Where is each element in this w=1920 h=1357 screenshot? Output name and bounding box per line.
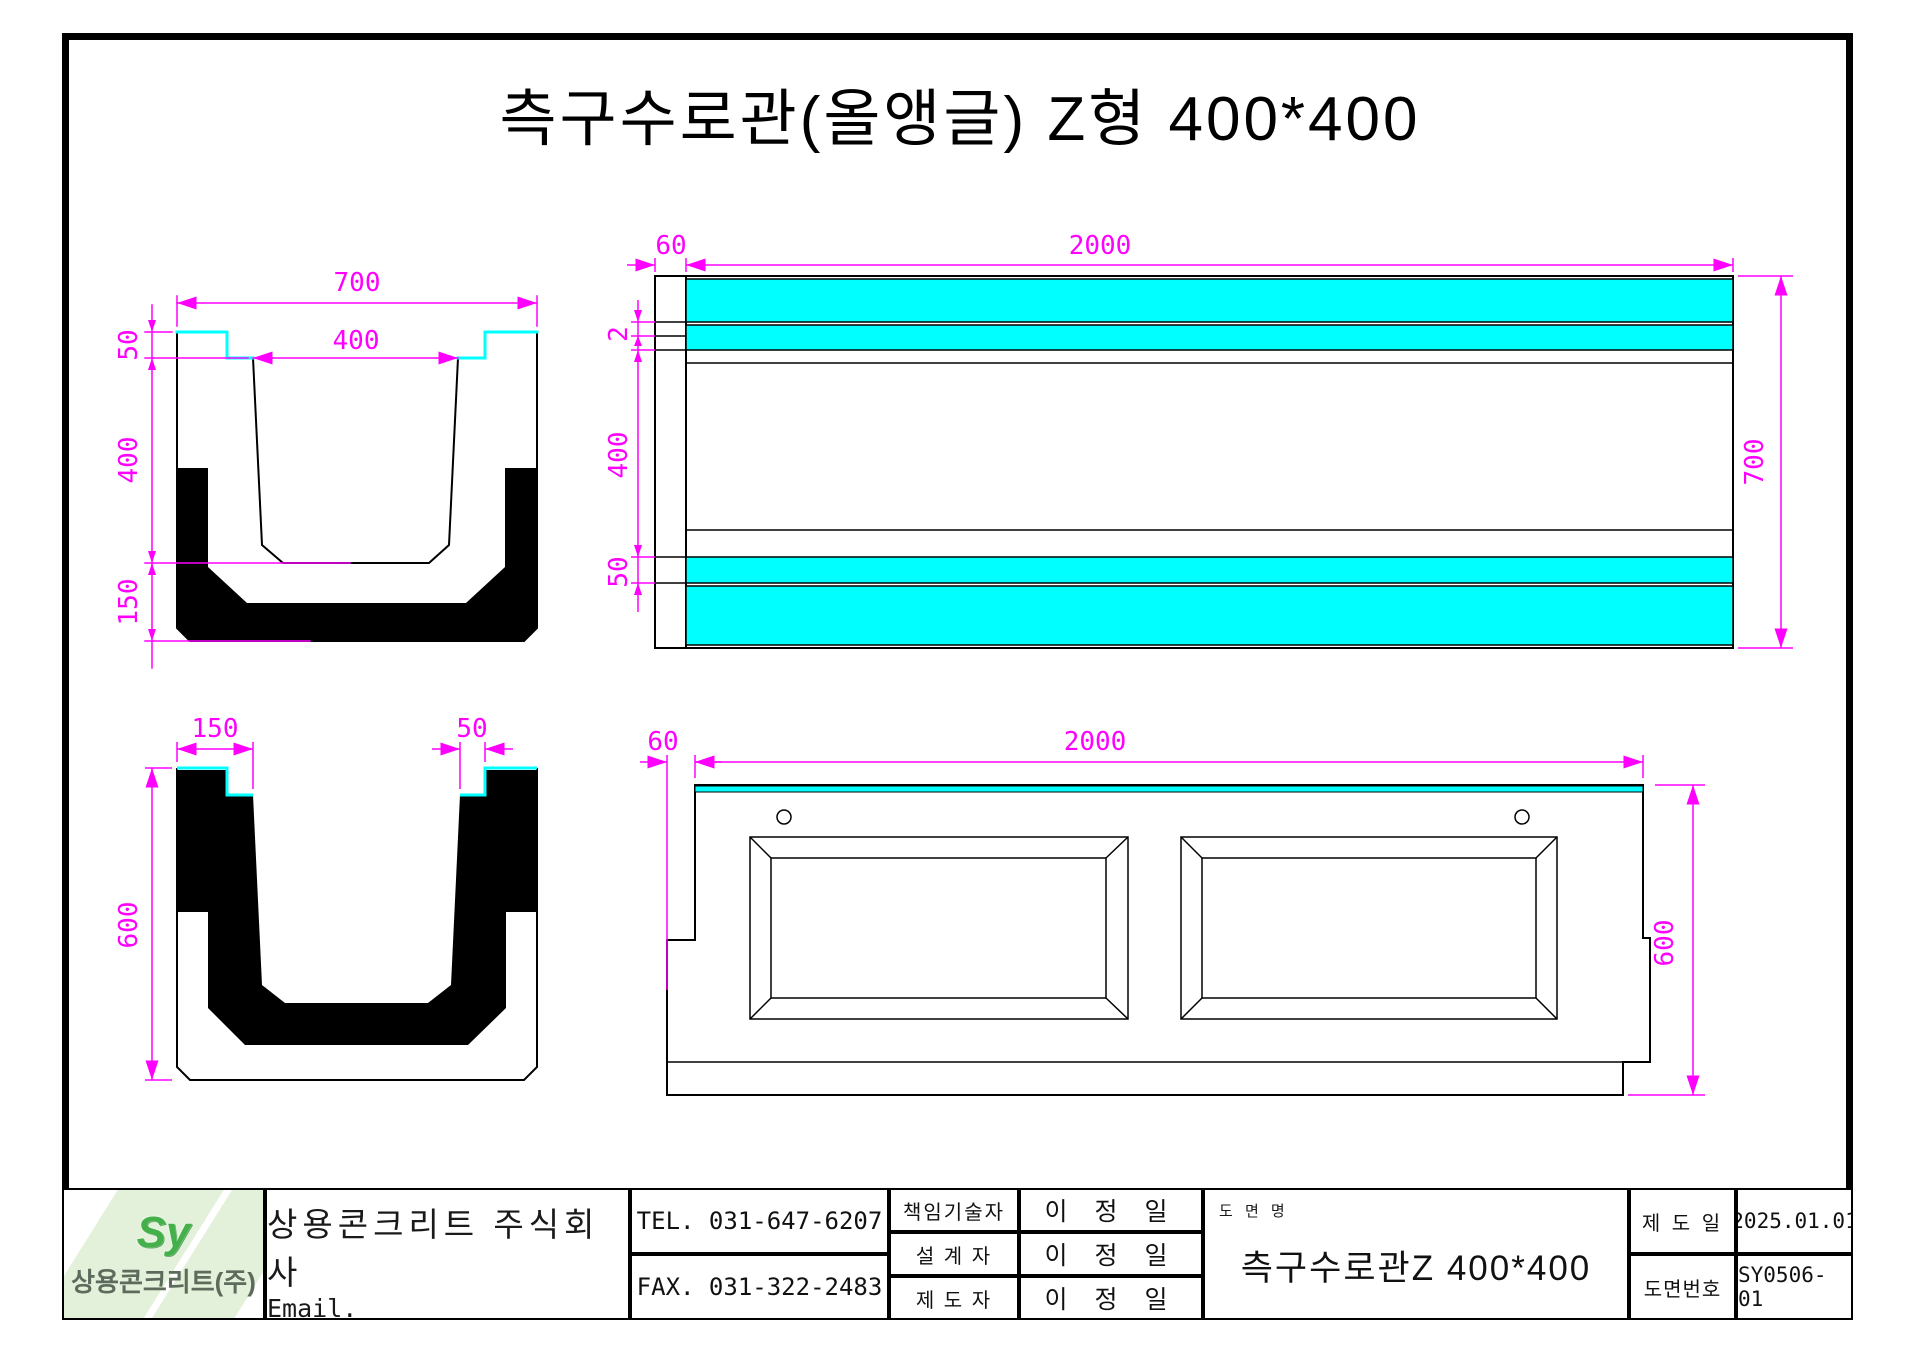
fax-cell: FAX. 031-322-2483 (630, 1254, 889, 1320)
tel-cell: TEL. 031-647-6207 (630, 1188, 889, 1254)
role-label-drafter: 제 도 자 (889, 1276, 1019, 1320)
cyan-band-1 (686, 279, 1733, 322)
dim-label: 400 (114, 437, 144, 484)
cyan-band-4 (686, 586, 1733, 645)
top-angle-strip (695, 786, 1643, 792)
dim-label: 50 (114, 329, 144, 360)
dim-label: 50 (604, 556, 634, 587)
drawing-name-cell: 도 면 명 측구수로관Z 400*400 (1203, 1188, 1629, 1320)
role-label-chief-engineer: 책임기술자 (889, 1188, 1019, 1232)
dim-label: 150 (114, 579, 144, 626)
role-label-designer: 설 계 자 (889, 1232, 1019, 1276)
section-concrete-fill (177, 468, 537, 641)
dim-label: 50 (456, 714, 487, 744)
plan-view: 60 2000 2 400 50 700 (604, 231, 1793, 648)
dim-label: 600 (114, 902, 144, 949)
dim-label: 600 (1650, 920, 1680, 967)
dim-label: 400 (604, 432, 634, 479)
company-name: 상용콘크리트 주식회사 (267, 1198, 628, 1294)
end-wall-fill (177, 770, 537, 1045)
company-short-name: 상용콘크리트(주) (71, 1262, 256, 1299)
dim-label: 700 (334, 268, 381, 298)
dim-label: 2 (604, 326, 634, 342)
cyan-band-2 (686, 325, 1733, 350)
section-view-top: 700 400 50 400 150 (114, 268, 537, 668)
dim-label: 60 (655, 231, 686, 261)
cyan-band-3 (686, 557, 1733, 583)
logo-cell: Sy 상용콘크리트(주) (62, 1188, 265, 1320)
role-name-drafter: 이 정 일 (1019, 1276, 1203, 1320)
end-view: 150 50 600 (114, 714, 537, 1080)
date-value-cell: 2025.01.01 (1736, 1188, 1853, 1254)
plan-joint-strip (655, 276, 686, 648)
dim-label: 400 (333, 326, 380, 356)
drawing-number-label-cell: 도면번호 (1629, 1254, 1736, 1320)
drawing-name-label: 도 면 명 (1219, 1200, 1289, 1221)
date-label-cell: 제 도 일 (1629, 1188, 1736, 1254)
views-canvas: 700 400 50 400 150 (0, 0, 1920, 1190)
section-cavity (253, 358, 458, 563)
dim-label: 150 (192, 714, 239, 744)
elevation-view: 60 2000 600 (640, 727, 1705, 1095)
lift-hole-right-icon (1515, 810, 1529, 824)
role-name-chief-engineer: 이 정 일 (1019, 1188, 1203, 1232)
company-logo-icon: Sy (137, 1210, 191, 1256)
role-name-designer: 이 정 일 (1019, 1232, 1203, 1276)
angle-edge-left-icon (177, 332, 253, 358)
lift-hole-left-icon (777, 810, 791, 824)
drawing-name: 측구수로관Z 400*400 (1241, 1240, 1592, 1291)
angle-edge-right-icon (458, 332, 537, 358)
drawing-number-value-cell: SY0506-01 (1736, 1254, 1853, 1320)
company-email: Email. syct2409@naver.com (267, 1294, 628, 1320)
dim-label: 2000 (1069, 231, 1132, 261)
company-cell: 상용콘크리트 주식회사 Email. syct2409@naver.com (265, 1188, 630, 1320)
title-block: Sy 상용콘크리트(주) 상용콘크리트 주식회사 Email. syct2409… (62, 1188, 1853, 1320)
dim-label: 2000 (1064, 727, 1127, 757)
dim-label: 60 (647, 727, 678, 757)
dim-label: 700 (1740, 439, 1770, 486)
elevation-outline (667, 785, 1650, 1095)
